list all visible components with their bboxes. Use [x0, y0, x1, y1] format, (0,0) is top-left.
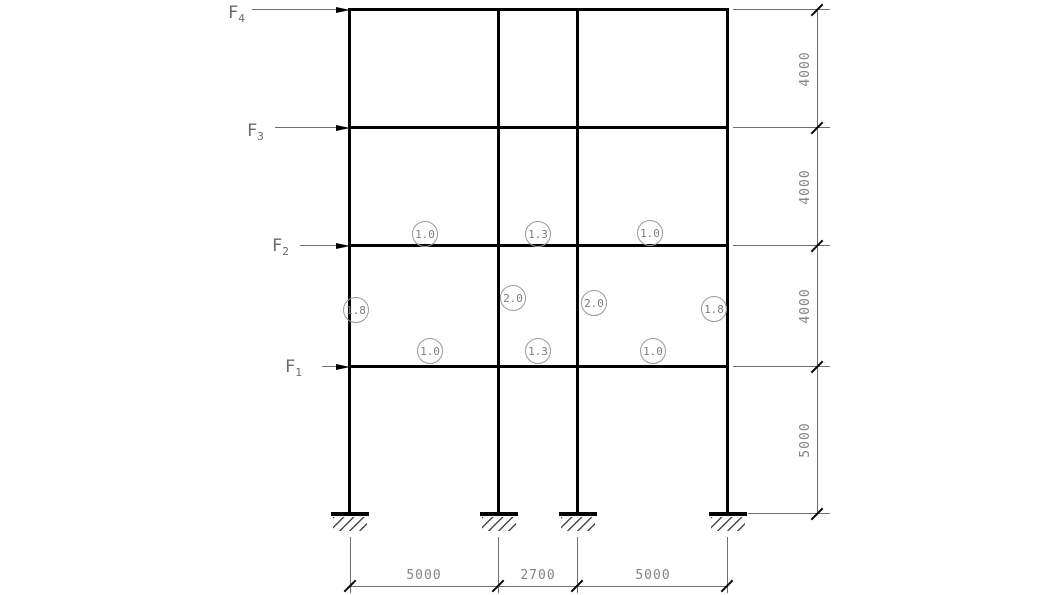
- force-label-f2: F2: [272, 236, 289, 256]
- fixed-support-3: [559, 512, 597, 516]
- arrowhead-icon: [336, 7, 350, 13]
- beam-roof: [348, 8, 729, 11]
- beam-level-1: [348, 365, 729, 368]
- dim-story-4: 4000: [799, 29, 813, 109]
- dim-bay-mid: 2700: [503, 569, 573, 583]
- coef-badge-beam2-right: 1.0: [637, 220, 663, 246]
- dim-line-horizontal: [350, 586, 728, 587]
- coef-badge-beam2-left: 1.0: [412, 221, 438, 247]
- coef-badge-beam1-left: 1.0: [417, 338, 443, 364]
- force-label-f4: F4: [228, 3, 245, 23]
- ground-hatch-icon: [482, 517, 516, 531]
- beam-level-3: [348, 126, 729, 129]
- fixed-support-4: [709, 512, 747, 516]
- force-arrow-line-f1: [322, 366, 336, 367]
- dim-line-vertical: [817, 10, 818, 515]
- coef-badge-column-3: 2.0: [581, 290, 607, 316]
- force-arrow-line-f4: [252, 9, 336, 10]
- dim-story-2: 4000: [799, 266, 813, 346]
- coef-badge-column-1: 1.8: [343, 297, 369, 323]
- ground-hatch-icon: [333, 517, 367, 531]
- dim-story-3: 4000: [799, 147, 813, 227]
- dim-bay-left: 5000: [389, 569, 459, 583]
- coef-badge-beam2-mid: 1.3: [525, 221, 551, 247]
- column-line-3: [576, 10, 579, 514]
- ground-hatch-icon: [711, 517, 745, 531]
- force-arrow-line-f2: [300, 245, 336, 246]
- column-line-2: [497, 10, 500, 514]
- fixed-support-1: [331, 512, 369, 516]
- coef-badge-beam1-right: 1.0: [640, 338, 666, 364]
- arrowhead-icon: [336, 243, 350, 249]
- column-line-4: [726, 10, 729, 514]
- arrowhead-icon: [336, 125, 350, 131]
- force-label-f1: F1: [285, 357, 302, 377]
- dim-bay-right: 5000: [618, 569, 688, 583]
- force-label-f3: F3: [247, 121, 264, 141]
- coef-badge-column-2: 2.0: [500, 285, 526, 311]
- coef-badge-beam1-mid: 1.3: [525, 338, 551, 364]
- ground-hatch-icon: [561, 517, 595, 531]
- dim-story-1: 5000: [799, 400, 813, 480]
- column-line-1: [348, 10, 351, 514]
- coef-badge-column-4: 1.8: [701, 296, 727, 322]
- fixed-support-2: [480, 512, 518, 516]
- arrowhead-icon: [336, 364, 350, 370]
- force-arrow-line-f3: [275, 127, 336, 128]
- structural-frame-drawing: F4 F3 F2 F1 1.0 1.3 1.0 1.8 2.0 2.0 1.8 …: [0, 0, 1056, 595]
